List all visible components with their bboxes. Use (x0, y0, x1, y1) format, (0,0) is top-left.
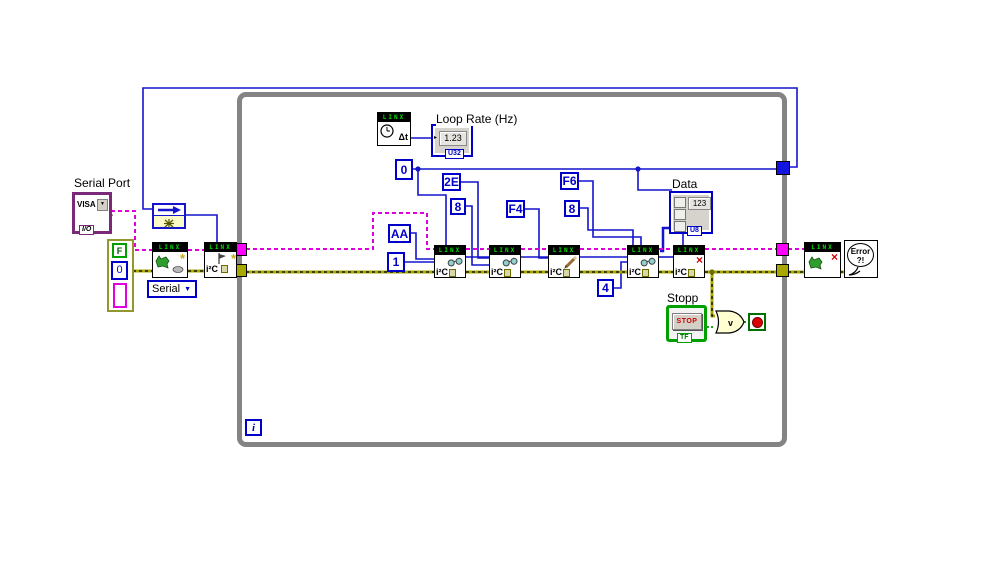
visa-text: VISA (77, 200, 96, 209)
flag-icon (217, 253, 227, 264)
error-status-constant[interactable]: F (112, 243, 127, 258)
linx-banner: LINX (549, 246, 579, 255)
initializer-asterisk-icon (154, 218, 184, 229)
glasses-icon (639, 255, 657, 267)
connector-icon (172, 266, 184, 273)
linx-banner: LINX (435, 246, 465, 255)
linx-device-icon (155, 255, 171, 269)
error-code-constant[interactable]: 0 (111, 261, 128, 280)
error-cluster-constant[interactable]: F 0 (107, 239, 134, 312)
constant-channel[interactable]: 0 (395, 159, 413, 180)
data-array-indicator[interactable]: 123 U8 (669, 191, 713, 234)
data-label: Data (672, 178, 697, 191)
i2c-node-4[interactable]: LINX i²C (627, 245, 659, 278)
stopp-control[interactable]: STOP TF (666, 305, 707, 342)
block-diagram-canvas: v i Serial Port VISA ▼ I/O (0, 0, 1006, 587)
visa-dropdown-button[interactable]: ▼ (97, 199, 108, 211)
loop-rate-value: 1.23 (439, 131, 467, 146)
close-x-icon: × (696, 253, 703, 267)
i2c-close-node[interactable]: LINX × i²C (673, 245, 705, 278)
feedback-node[interactable] (152, 203, 186, 229)
linx-banner: LINX (628, 246, 658, 255)
glasses-icon (446, 255, 464, 267)
i2c-label: i²C (550, 267, 562, 277)
constant-aa[interactable]: AA (388, 224, 411, 243)
constant-f6[interactable]: F6 (560, 172, 579, 190)
delta-t-label: Δt (399, 132, 408, 142)
connector-pin-icon (688, 269, 695, 277)
connector-pin-icon (642, 269, 649, 277)
coercion-arrow-icon: ▸ (434, 134, 437, 141)
tunnel-error-right[interactable] (776, 264, 789, 277)
stop-sign-icon (752, 317, 763, 328)
constant-1[interactable]: 1 (387, 252, 405, 272)
i2c-node-2[interactable]: LINX i²C (489, 245, 521, 278)
error-handler-text: Error (848, 247, 873, 256)
stop-button[interactable]: STOP (672, 313, 702, 330)
stopp-type-tag: TF (677, 333, 692, 343)
error-source-string-constant[interactable] (113, 283, 127, 308)
tunnel-channel[interactable] (776, 161, 790, 175)
constant-8b[interactable]: 8 (564, 200, 580, 217)
serial-dropdown[interactable]: Serial ▼ (147, 280, 197, 298)
i2c-label: i²C (675, 267, 687, 277)
constant-4[interactable]: 4 (597, 279, 614, 297)
sparkle-icon: * (180, 254, 185, 264)
i2c-open-node[interactable]: LINX * i²C (204, 242, 237, 278)
loop-rate-label: Loop Rate (Hz) (436, 113, 517, 126)
stopp-label: Stopp (667, 292, 698, 305)
loop-rate-type-tag: U32 (445, 149, 464, 159)
tunnel-visa-right[interactable] (776, 243, 789, 256)
serial-port-label: Serial Port (74, 177, 130, 190)
close-x-icon: × (831, 250, 838, 264)
i2c-label: i²C (491, 267, 503, 277)
linx-banner: LINX (490, 246, 520, 255)
linx-open-node[interactable]: LINX * (152, 242, 188, 278)
connector-pin-icon (563, 269, 570, 277)
glasses-icon (501, 255, 519, 267)
array-index-boxes[interactable] (674, 197, 686, 232)
loop-rate-indicator[interactable]: ▸ 1.23 U32 (431, 124, 473, 157)
connector-pin-icon (504, 269, 511, 277)
pencil-icon (563, 256, 577, 269)
simple-error-handler-node[interactable]: Error ?! (844, 240, 878, 278)
clock-icon (380, 124, 394, 138)
data-type-tag: U8 (687, 226, 702, 236)
i2c-node-1[interactable]: LINX i²C (434, 245, 466, 278)
chevron-down-icon: ▼ (184, 286, 191, 293)
constant-8a[interactable]: 8 (450, 198, 466, 215)
i2c-label: i²C (629, 267, 641, 277)
linx-wait-node[interactable]: LINX Δt (377, 112, 411, 146)
speech-tail-icon (848, 267, 862, 277)
linx-banner: LINX (378, 113, 410, 122)
linx-close-node[interactable]: LINX × (804, 242, 841, 278)
visa-resource-control[interactable]: VISA ▼ I/O (72, 192, 112, 234)
constant-f4[interactable]: F4 (506, 200, 525, 218)
connector-pin-icon (449, 269, 456, 277)
i2c-label: i²C (436, 267, 448, 277)
constant-2e[interactable]: 2E (442, 173, 461, 191)
loop-iteration-terminal[interactable]: i (245, 419, 262, 436)
error-handler-text2: ?! (848, 256, 873, 265)
right-arrow-icon (154, 205, 184, 215)
sparkle-icon: * (231, 254, 236, 264)
connector-pin-icon (221, 265, 228, 273)
i2c-label: i²C (206, 264, 218, 274)
serial-dropdown-value: Serial (152, 283, 180, 295)
i2c-node-3[interactable]: LINX i²C (548, 245, 580, 278)
visa-type-tag: I/O (79, 225, 94, 235)
data-value: 123 (688, 197, 711, 210)
loop-stop-terminal[interactable] (748, 313, 766, 331)
linx-device-icon (808, 256, 824, 270)
